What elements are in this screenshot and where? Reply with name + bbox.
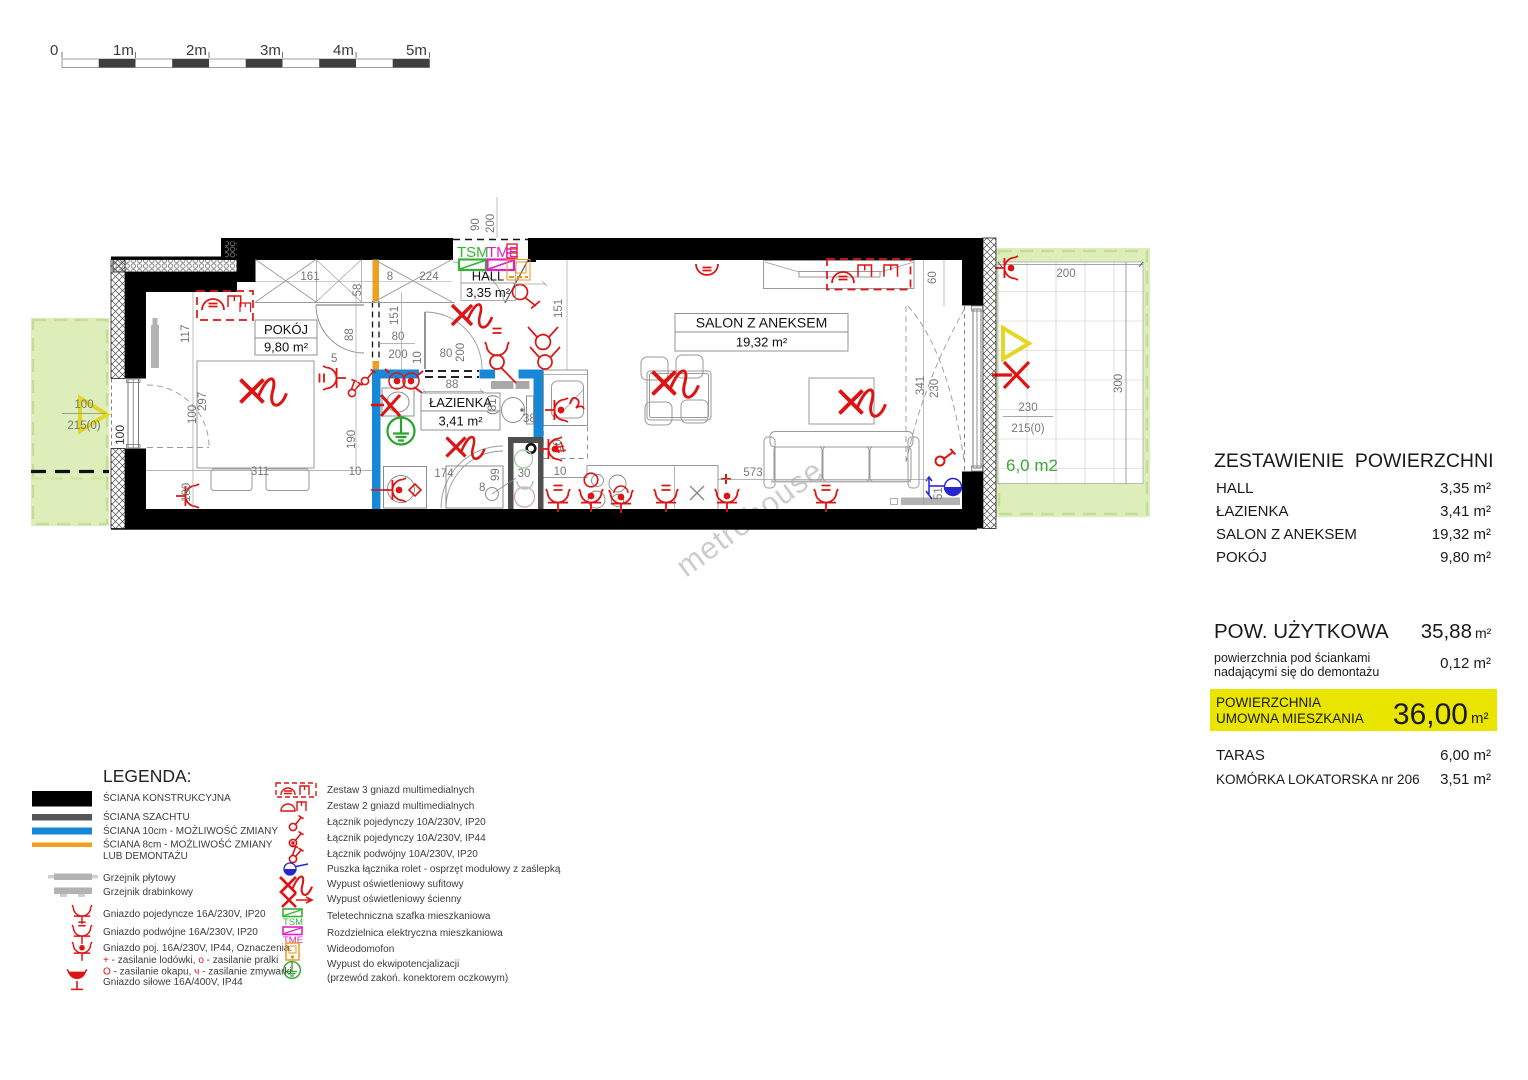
svg-text:Łącznik pojedynczy 10A/230V, I: Łącznik pojedynczy 10A/230V, IP44 <box>327 833 486 844</box>
svg-text:SALON Z ANEKSEM: SALON Z ANEKSEM <box>696 315 827 331</box>
svg-text:m²: m² <box>1475 625 1492 641</box>
svg-text:300: 300 <box>1113 374 1125 393</box>
svg-text:19,32 m²: 19,32 m² <box>736 335 788 350</box>
svg-text:10: 10 <box>349 466 362 478</box>
svg-text:UMOWNA MIESZKANIA: UMOWNA MIESZKANIA <box>1216 711 1364 726</box>
svg-text:200: 200 <box>1056 268 1075 280</box>
svg-text:8: 8 <box>387 271 393 283</box>
svg-text:58: 58 <box>352 284 364 297</box>
svg-text:88: 88 <box>344 328 356 341</box>
svg-text:Łącznik pojedynczy 10A/230V, I: Łącznik pojedynczy 10A/230V, IP20 <box>327 817 486 828</box>
svg-text:117: 117 <box>180 325 192 343</box>
svg-text:Grzejnik płytowy: Grzejnik płytowy <box>103 873 176 884</box>
svg-text:230: 230 <box>1018 402 1037 414</box>
svg-text:SALON Z ANEKSEM: SALON Z ANEKSEM <box>1216 526 1357 543</box>
svg-text:Gniazdo podwójne 16A/230V, IP2: Gniazdo podwójne 16A/230V, IP20 <box>103 927 258 938</box>
svg-text:80: 80 <box>392 331 405 343</box>
svg-text:Wypust oświetleniowy sufitowy: Wypust oświetleniowy sufitowy <box>327 879 464 890</box>
svg-text:KOMÓRKA LOKATORSKA nr 206: KOMÓRKA LOKATORSKA nr 206 <box>1216 772 1420 787</box>
svg-text:60: 60 <box>927 271 939 284</box>
svg-text:m²: m² <box>1471 710 1489 727</box>
svg-text:341: 341 <box>915 376 927 395</box>
svg-text:(81): (81) <box>487 394 499 415</box>
svg-text:90: 90 <box>470 218 482 231</box>
svg-text:0,12 m²: 0,12 m² <box>1440 655 1491 672</box>
svg-text:HALL: HALL <box>1216 480 1254 497</box>
svg-text:ZESTAWIENIE POWIERZCHNI: ZESTAWIENIE POWIERZCHNI <box>1214 450 1494 472</box>
svg-text:9,80 m²: 9,80 m² <box>1440 549 1491 566</box>
svg-text:ŁAZIENKA: ŁAZIENKA <box>429 395 492 410</box>
svg-text:161: 161 <box>300 271 319 283</box>
svg-text:174: 174 <box>434 468 454 480</box>
svg-text:35,88: 35,88 <box>1421 620 1472 643</box>
svg-text:Grzejnik drabinkowy: Grzejnik drabinkowy <box>103 887 193 898</box>
svg-text:Teletechniczna szafka mieszkan: Teletechniczna szafka mieszkaniowa <box>327 911 491 922</box>
svg-text:3,41 m²: 3,41 m² <box>438 414 483 429</box>
svg-text:4m: 4m <box>333 42 354 59</box>
svg-text:3m: 3m <box>260 42 281 59</box>
svg-text:180: 180 <box>181 483 193 502</box>
svg-text:(przewód zakoń. konektorem ocz: (przewód zakoń. konektorem oczkowym) <box>327 973 508 984</box>
svg-text:19,32 m²: 19,32 m² <box>1432 526 1491 543</box>
svg-text:88: 88 <box>446 379 459 391</box>
svg-text:Wypust oświetleniowy ścienny: Wypust oświetleniowy ścienny <box>327 894 461 905</box>
svg-text:100: 100 <box>74 399 93 411</box>
svg-text:2m: 2m <box>186 42 207 59</box>
svg-text:ŁAZIENKA: ŁAZIENKA <box>1216 503 1289 520</box>
svg-text:+ - zasilanie lodówki, o -: + - zasilanie lodówki, o - zasilanie pra… <box>103 955 278 966</box>
svg-text:200: 200 <box>485 214 497 233</box>
svg-text:3,51 m²: 3,51 m² <box>1440 771 1491 788</box>
svg-text:powierzchnia pod ściankami: powierzchnia pod ściankami <box>1214 651 1370 665</box>
svg-text:O - zasilanie okapu, ч - za: O - zasilanie okapu, ч - zasilanie zmywa… <box>103 967 292 978</box>
svg-text:200: 200 <box>388 349 407 361</box>
svg-text:Gniazdo poj. 16A/230V, IP44, O: Gniazdo poj. 16A/230V, IP44, Oznaczenia: <box>103 943 292 954</box>
svg-text:215(0): 215(0) <box>67 420 100 432</box>
svg-text:ŚCIANA SZACHTU: ŚCIANA SZACHTU <box>103 810 190 823</box>
svg-text:224: 224 <box>419 271 439 283</box>
svg-text:190: 190 <box>346 430 358 449</box>
svg-text:POKÓJ: POKÓJ <box>264 322 308 337</box>
svg-text:3,35 m²: 3,35 m² <box>1440 480 1491 497</box>
svg-text:Gniazdo siłowe 16A/400V, IP44: Gniazdo siłowe 16A/400V, IP44 <box>103 977 243 988</box>
svg-text:151: 151 <box>553 299 565 318</box>
svg-text:POKÓJ: POKÓJ <box>1216 549 1267 566</box>
svg-text:ŚCIANA 8cm - MOŻLIWOŚĆ ZMIANY: ŚCIANA 8cm - MOŻLIWOŚĆ ZMIANY <box>103 838 273 851</box>
svg-text:5m: 5m <box>406 42 427 59</box>
svg-text:9,80 m²: 9,80 m² <box>264 340 309 355</box>
svg-text:0: 0 <box>50 42 58 59</box>
svg-text:6,0 m2: 6,0 m2 <box>1006 456 1058 475</box>
svg-text:8: 8 <box>479 482 485 494</box>
svg-text:Gniazdo pojedyncze 16A/230V, I: Gniazdo pojedyncze 16A/230V, IP20 <box>103 909 266 920</box>
svg-text:230: 230 <box>929 379 941 398</box>
svg-text:99: 99 <box>490 468 502 481</box>
svg-text:LUB DEMONTAŻU: LUB DEMONTAŻU <box>103 849 188 862</box>
svg-text:POW. UŻYTKOWA: POW. UŻYTKOWA <box>1214 620 1389 643</box>
svg-text:38: 38 <box>523 413 536 425</box>
svg-text:151: 151 <box>389 306 401 325</box>
svg-text:6,00 m²: 6,00 m² <box>1440 747 1491 764</box>
svg-text:100: 100 <box>187 405 199 424</box>
svg-text:nadającymi się do demontażu: nadającymi się do demontażu <box>1214 665 1379 679</box>
svg-text:10: 10 <box>554 466 567 478</box>
svg-text:Zestaw 3 gniazd multimedialnyc: Zestaw 3 gniazd multimedialnych <box>327 785 474 796</box>
svg-text:100: 100 <box>113 425 127 445</box>
svg-text:TARAS: TARAS <box>1216 747 1265 764</box>
svg-text:30: 30 <box>518 468 531 480</box>
svg-text:POWIERZCHNIA: POWIERZCHNIA <box>1216 695 1321 710</box>
svg-text:Wideodomofon: Wideodomofon <box>327 944 394 955</box>
svg-text:ŚCIANA KONSTRUKCYJNA: ŚCIANA KONSTRUKCYJNA <box>103 791 231 804</box>
svg-text:1m: 1m <box>113 42 134 59</box>
svg-text:Rozdzielnica elektryczna miesz: Rozdzielnica elektryczna mieszkaniowa <box>327 928 503 939</box>
svg-text:36,00: 36,00 <box>1393 698 1468 731</box>
svg-text:LEGENDA:: LEGENDA: <box>103 766 192 786</box>
svg-text:200: 200 <box>455 343 467 362</box>
svg-text:215(0): 215(0) <box>1011 423 1044 435</box>
svg-text:Łącznik podwójny 10A/230V, IP2: Łącznik podwójny 10A/230V, IP20 <box>327 849 478 860</box>
svg-text:Zestaw 2 gniazd multimedialnyc: Zestaw 2 gniazd multimedialnych <box>327 801 474 812</box>
svg-text:3,41 m²: 3,41 m² <box>1440 503 1491 520</box>
svg-text:5: 5 <box>331 353 337 365</box>
svg-text:3,35 m²: 3,35 m² <box>466 285 511 300</box>
svg-text:ŚCIANA 10cm - MOŻLIWOŚĆ ZMIANY: ŚCIANA 10cm - MOŻLIWOŚĆ ZMIANY <box>103 824 278 837</box>
svg-text:Wypust do ekwipotencjalizacji: Wypust do ekwipotencjalizacji <box>327 959 459 970</box>
svg-text:Puszka łącznika rolet - osprzę: Puszka łącznika rolet - osprzęt modułowy… <box>327 864 561 875</box>
svg-text:311: 311 <box>251 466 269 478</box>
svg-text:80: 80 <box>440 348 453 360</box>
svg-text:10: 10 <box>412 351 424 364</box>
svg-text:51: 51 <box>933 487 945 500</box>
svg-text:573: 573 <box>743 467 762 479</box>
